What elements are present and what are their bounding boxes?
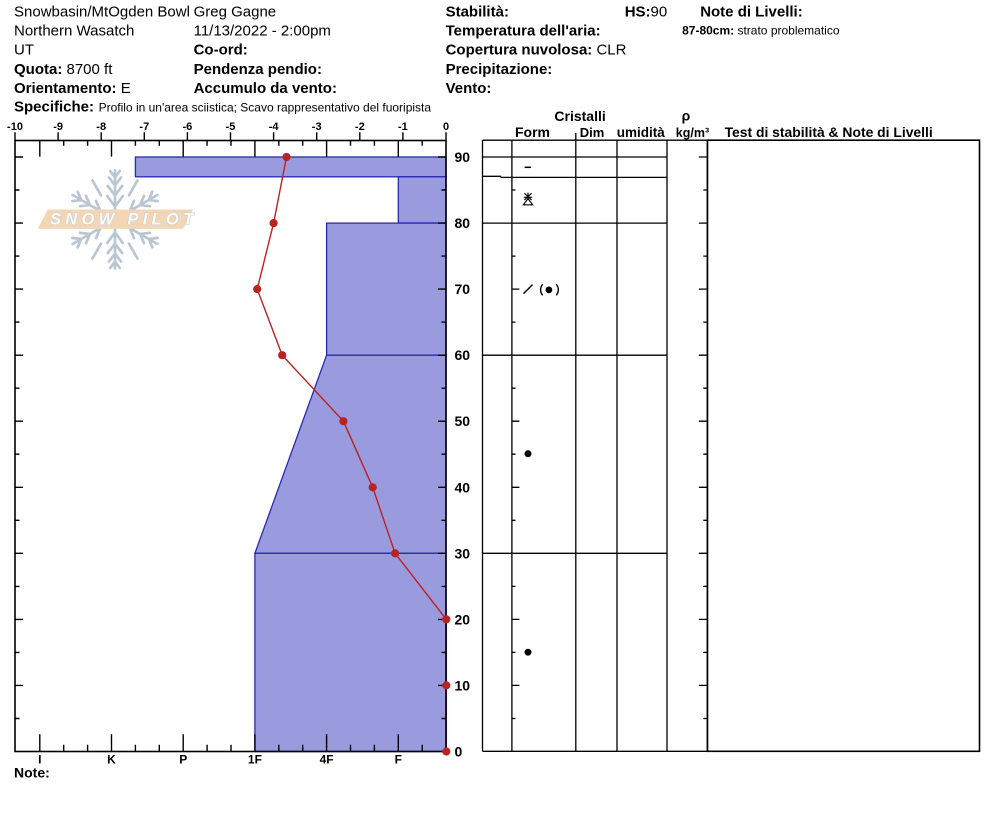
svg-text:Note:: Note: (14, 765, 50, 781)
svg-text:-4: -4 (269, 121, 280, 133)
svg-text:11/13/2022 - 2:00pm: 11/13/2022 - 2:00pm (194, 23, 331, 40)
svg-text:Quota: 8700 ft: Quota: 8700 ft (14, 61, 113, 78)
svg-text:Snowbasin/MtOgden Bowl: Snowbasin/MtOgden Bowl (14, 4, 190, 21)
svg-text:30: 30 (455, 545, 471, 561)
svg-text:80: 80 (455, 215, 471, 231)
svg-text:-10: -10 (7, 121, 23, 133)
svg-text:Precipitazione:: Precipitazione: (446, 61, 553, 78)
svg-text:Co-ord:: Co-ord: (194, 42, 248, 59)
svg-text:-1: -1 (398, 121, 408, 133)
svg-text:-8: -8 (96, 121, 106, 133)
svg-text:40: 40 (455, 479, 471, 495)
svg-text:Northern Wasatch: Northern Wasatch (14, 23, 134, 40)
svg-text:70: 70 (455, 281, 471, 297)
svg-text:Greg Gagne: Greg Gagne (194, 4, 277, 21)
svg-text:SNOW PILOT: SNOW PILOT (50, 211, 198, 229)
svg-text:4F: 4F (320, 753, 334, 767)
svg-text:UT: UT (14, 42, 34, 59)
svg-text:Pendenza pendio:: Pendenza pendio: (194, 61, 322, 78)
svg-text:-3: -3 (312, 121, 322, 133)
svg-text:P: P (179, 753, 187, 767)
svg-text:Copertura nuvolosa: CLR: Copertura nuvolosa: CLR (446, 42, 627, 59)
svg-text:Vento:: Vento: (446, 80, 492, 97)
svg-text:Cristalli: Cristalli (554, 108, 605, 124)
svg-text:0: 0 (443, 121, 449, 133)
svg-text:-9: -9 (53, 121, 63, 133)
svg-text:87-80cm: strato problematico: 87-80cm: strato problematico (682, 24, 840, 38)
svg-text:K: K (107, 753, 116, 767)
svg-text:50: 50 (455, 413, 471, 429)
svg-text:Stabilità:: Stabilità: (446, 4, 509, 21)
svg-text:Temperatura dell'aria:: Temperatura dell'aria: (446, 23, 601, 40)
svg-text:-7: -7 (139, 121, 149, 133)
svg-text:Accumulo da vento:: Accumulo da vento: (194, 80, 337, 97)
svg-text:-6: -6 (183, 121, 193, 133)
svg-text:ρ: ρ (682, 108, 691, 124)
svg-text:Test di stabilità & Note di Li: Test di stabilità & Note di Livelli (725, 124, 933, 140)
svg-text:F: F (395, 753, 402, 767)
svg-text:Note di Livelli:: Note di Livelli: (700, 4, 803, 21)
svg-text:kg/m³: kg/m³ (676, 126, 709, 140)
svg-text:60: 60 (455, 347, 471, 363)
svg-text:Specifiche: Profilo in un'area: Specifiche: Profilo in un'area sciistica… (14, 99, 431, 116)
svg-text:Orientamento: E: Orientamento: E (14, 80, 131, 97)
svg-text:0: 0 (455, 744, 463, 760)
svg-text:1F: 1F (248, 753, 262, 767)
svg-text:HS:90: HS:90 (625, 4, 668, 21)
svg-text:-2: -2 (355, 121, 365, 133)
svg-text:umidità: umidità (617, 125, 665, 140)
svg-text:-5: -5 (226, 121, 236, 133)
svg-text:Dim: Dim (580, 125, 605, 140)
svg-text:20: 20 (455, 611, 471, 627)
svg-text:10: 10 (455, 677, 471, 693)
svg-text:90: 90 (455, 149, 471, 165)
svg-text:Form: Form (515, 124, 550, 140)
